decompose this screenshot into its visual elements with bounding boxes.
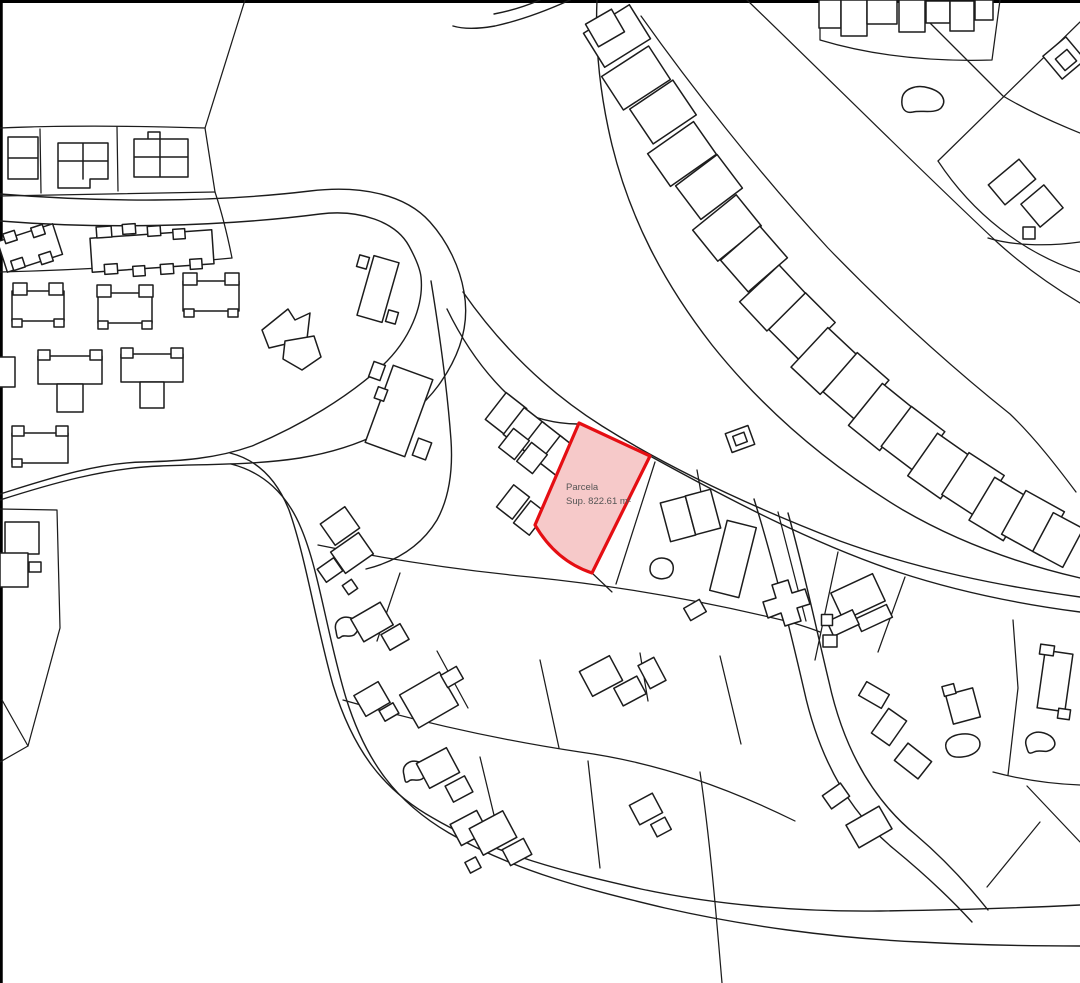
parcel-label-area: Sup. 822.61 m² — [566, 496, 631, 507]
cadastral-map[interactable]: Parcela Sup. 822.61 m² — [0, 0, 1080, 983]
building-blocks — [0, 0, 1080, 873]
parcel-label-name: Parcela — [566, 482, 599, 493]
map-svg[interactable]: Parcela Sup. 822.61 m² — [0, 0, 1080, 983]
